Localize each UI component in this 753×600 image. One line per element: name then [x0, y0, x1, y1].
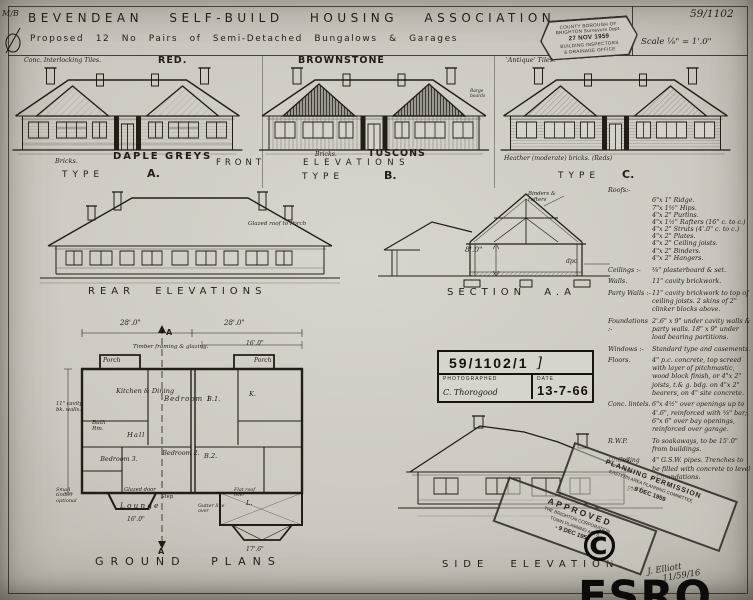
spec-label: Windows :- [608, 345, 652, 353]
photo-reference-number: 59/1102/1 [449, 355, 529, 371]
spec-row-windows: Windows :- Standard type and casements. [608, 345, 751, 353]
plan-timber-note: Small timber optional [56, 488, 86, 504]
type-a-bricks-word: Bricks. [55, 157, 78, 165]
spec-text: Standard type and casements. [652, 345, 751, 353]
plan-dim-left: 28'.0" [120, 319, 141, 327]
type-b-barge-note: Barge boards [470, 90, 488, 100]
spec-text: To soakaways, to be 15'.0" from building… [652, 437, 751, 454]
plan-cavity-note: 11" cavity bk. walls. [56, 402, 90, 413]
room-bath: Bath Rm. [92, 420, 118, 433]
section-aa-drawing [378, 186, 610, 298]
type-a-tile-note: Conc. Interlocking Tiles. [24, 57, 101, 64]
room-hall: Hall [127, 431, 145, 439]
photographed-label: PHOTOGRAPHED [443, 376, 531, 382]
room-kitchen-dining: Kitchen & Dining [116, 387, 174, 395]
front-row-word: FRONT [216, 158, 265, 168]
spec-roof-item: 4"x 2" Hangers. [652, 255, 751, 262]
plan-section-marker-top: A [166, 328, 172, 337]
room-bedroom3: Bedroom 3. [98, 456, 140, 463]
margin-check-mark [3, 26, 23, 54]
spec-label: Floors. [608, 356, 652, 398]
type-c-letter: C. [622, 168, 634, 181]
spec-label: Walls. [608, 277, 652, 285]
rear-roof-note: Glazed roof to Porch [248, 221, 306, 227]
scale-note: Scale ⅛" = 1'.0" [641, 37, 712, 47]
plan-lounge-dim: 16'.0" [127, 516, 145, 523]
ground-plans-label: GROUND PLANS [95, 555, 282, 568]
type-b-tile-name: BROWNSTONE [298, 55, 385, 66]
front-elevation-type-a-drawing [10, 64, 245, 156]
spec-text: 6"x 4½" over openings up to 4'.6", reinf… [652, 400, 751, 433]
page-title: BEVENDEAN SELF-BUILD HOUSING ASSOCIATION… [28, 11, 564, 25]
front-elevation-type-c-drawing [498, 64, 733, 156]
spec-row-walls: Walls. 11" cavity brickwork. [608, 277, 751, 285]
spec-label: Ceilings :- [608, 266, 652, 274]
plan-dim-right: 28'.0" [224, 319, 245, 327]
spec-row-foundations: Foundations :- 2'.6" x 9" under cavity w… [608, 317, 751, 342]
type-b-bricks-word: Bricks. [315, 151, 337, 158]
spec-label: Foundations :- [608, 317, 652, 342]
room-l: L. [246, 499, 253, 507]
room-lounge: Lounge [120, 501, 160, 510]
rear-elevation-drawing [40, 186, 340, 291]
plan-glazed-door: Glazed door [124, 487, 156, 493]
rear-elevations-label: REAR ELEVATIONS [88, 286, 266, 297]
room-k: K. [249, 390, 256, 398]
room-b1: B.1. [207, 395, 220, 403]
type-a-brick-name: DAPLE GREYS [113, 151, 212, 162]
photographer-signature: C. Thorogood [443, 388, 498, 397]
plan-dim-17: 17'.6" [246, 546, 264, 553]
ground-plan-drawing [52, 323, 337, 551]
section-height-dim: 8'.0" [465, 245, 482, 254]
front-elevation-type-b-drawing [258, 64, 490, 156]
type-b-word: TYPE [302, 172, 344, 182]
type-b-letter: B. [384, 169, 397, 182]
spec-text: 2'.6" x 9" under cavity walls & party wa… [652, 317, 751, 342]
room-porch-right: Porch [254, 357, 272, 364]
photo-reference-bracket: ] [537, 355, 544, 371]
room-porch-left: Porch [103, 357, 121, 364]
spec-roofs: Roofs:- [608, 186, 751, 194]
spec-text: 11" cavity brickwork. [652, 277, 751, 285]
type-b-brick-name: TUSCONS [368, 148, 426, 159]
plan-dim-16: 16'.0" [246, 340, 264, 347]
elevations-row-word: ELEVATIONS [303, 158, 410, 168]
spec-label: Party Walls :- [608, 289, 652, 314]
room-bedroom2: Bedroom 2. [160, 450, 202, 457]
date-label: DATE [537, 376, 592, 382]
spec-row-ceilings: Ceilings :- ⅜" plasterboard & set. [608, 266, 751, 274]
type-c-word: TYPE [558, 171, 600, 181]
type-c-tile-note: 'Antique' Tiles. [506, 56, 555, 64]
drawing-sheet: M/B BEVENDEAN SELF-BUILD HOUSING ASSOCIA… [0, 0, 753, 600]
plan-framing-note: Timber framing & glazing. [133, 344, 208, 350]
type-c-brick-note: Heather (moderate) bricks. (Reds) [504, 155, 612, 162]
margin-mark: M/B [2, 9, 19, 18]
room-b2: B.2. [204, 452, 217, 460]
section-dpc-note: dpc [566, 258, 577, 265]
county-stamp: COUNTY BOROUGH OF BRIGHTON Surveyors Dep… [539, 15, 640, 62]
spec-text: ⅜" plasterboard & set. [652, 266, 751, 274]
spec-text: 4" p.c. concrete, top screed with layer … [652, 356, 751, 398]
plan-flat-roof-note: Flat roof over [234, 488, 262, 498]
type-a-word: TYPE [62, 170, 104, 180]
room-bedroom1: Bedroom 1 [164, 395, 212, 403]
drawing-number: 59/1102 [690, 8, 734, 20]
type-a-letter: A. [147, 167, 160, 180]
subtitle: Proposed 12 No Pairs of Semi-Detached Bu… [30, 34, 458, 44]
photo-reference-box: 59/1102/1 ] PHOTOGRAPHED C. Thorogood DA… [437, 350, 594, 403]
elevation-divider-bc [494, 56, 495, 188]
section-apex-note: Binders & rafters [528, 192, 572, 204]
spec-row-floors: Floors. 4" p.c. concrete, top screed wit… [608, 356, 751, 398]
spec-roofs-label: Roofs:- [608, 186, 652, 194]
plan-gutter-note: Gutter line over [198, 504, 228, 514]
section-label: SECTION A.A [447, 287, 576, 298]
type-a-tile-name: RED. [158, 55, 187, 66]
spec-row-party-walls: Party Walls :- 11" cavity brickwork to t… [608, 289, 751, 314]
plan-step: Step [161, 494, 173, 500]
esro-watermark: © ESRO [578, 522, 753, 600]
spec-text: 11" cavity brickwork to top of ceiling j… [652, 289, 751, 314]
photo-date: 13-7-66 [537, 383, 589, 398]
